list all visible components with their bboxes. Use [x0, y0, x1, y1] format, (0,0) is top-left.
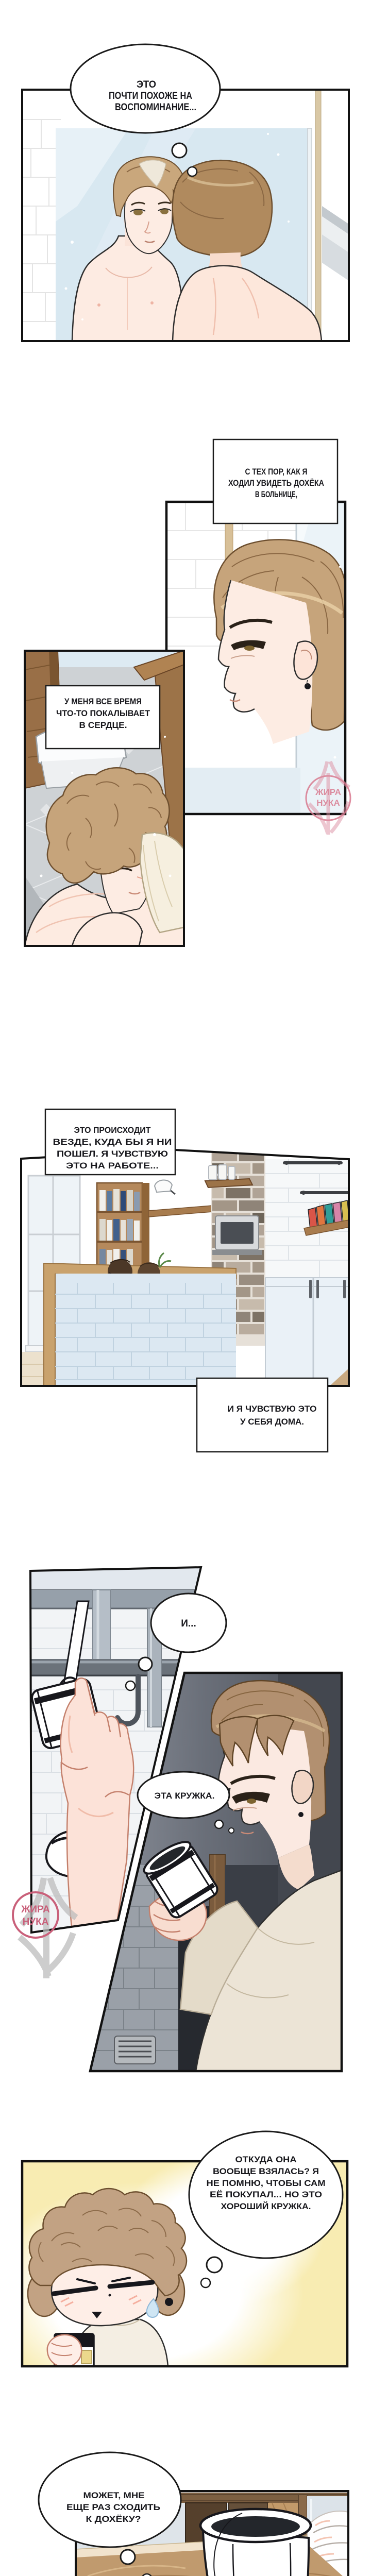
svg-text:У СЕБЯ ДОМА.: У СЕБЯ ДОМА. [240, 1417, 304, 1427]
svg-text:ЭТО НА РАБОТЕ...: ЭТО НА РАБОТЕ... [66, 1161, 159, 1171]
svg-text:ЧТО-ТО ПОКАЛЫВАЕТ: ЧТО-ТО ПОКАЛЫВАЕТ [56, 708, 150, 718]
svg-text:ВООБЩЕ ВЗЯЛАСЬ? Я: ВООБЩЕ ВЗЯЛАСЬ? Я [213, 2166, 319, 2176]
svg-text:ПОШЕЛ. Я ЧУВСТВУЮ: ПОШЕЛ. Я ЧУВСТВУЮ [57, 1149, 168, 1159]
svg-text:К ДОХЁКУ?: К ДОХЁКУ? [86, 2514, 141, 2524]
svg-text:И...: И... [181, 1618, 196, 1629]
svg-text:ЕЁ ПОКУПАЛ... НО ЭТО: ЕЁ ПОКУПАЛ... НО ЭТО [210, 2190, 322, 2199]
svg-text:С ТЕХ ПОР, КАК Я: С ТЕХ ПОР, КАК Я [245, 467, 308, 477]
svg-text:НУКА: НУКА [316, 798, 340, 808]
svg-text:НУКА: НУКА [23, 1917, 49, 1927]
svg-text:В БОЛЬНИЦЕ,: В БОЛЬНИЦЕ, [255, 489, 297, 499]
svg-text:ХОДИЛ УВИДЕТЬ ДОХЁКА: ХОДИЛ УВИДЕТЬ ДОХЁКА [228, 478, 324, 488]
svg-text:ВОСПОМИНАНИЕ...: ВОСПОМИНАНИЕ... [115, 102, 196, 113]
svg-text:И Я ЧУВСТВУЮ ЭТО: И Я ЧУВСТВУЮ ЭТО [228, 1404, 317, 1414]
svg-text:ХОРОШИЙ КРУЖКА.: ХОРОШИЙ КРУЖКА. [221, 2201, 311, 2211]
svg-text:У МЕНЯ ВСЕ ВРЕМЯ: У МЕНЯ ВСЕ ВРЕМЯ [64, 697, 142, 706]
svg-text:ЕЩЕ РАЗ СХОДИТЬ: ЕЩЕ РАЗ СХОДИТЬ [66, 2502, 160, 2512]
svg-text:ПОЧТИ ПОХОЖЕ НА: ПОЧТИ ПОХОЖЕ НА [109, 91, 192, 101]
svg-text:ЭТО: ЭТО [137, 79, 156, 90]
svg-text:ЖИРА: ЖИРА [315, 787, 341, 797]
svg-text:ЭТО ПРОИСХОДИТ: ЭТО ПРОИСХОДИТ [74, 1125, 151, 1135]
svg-text:ВЕЗДЕ, КУДА БЫ Я НИ: ВЕЗДЕ, КУДА БЫ Я НИ [53, 1137, 172, 1147]
svg-text:МОЖЕТ, МНЕ: МОЖЕТ, МНЕ [83, 2490, 145, 2500]
svg-text:ОТКУДА ОНА: ОТКУДА ОНА [235, 2155, 297, 2164]
svg-text:ЖИРА: ЖИРА [21, 1904, 50, 1915]
svg-text:ЭТА КРУЖКА.: ЭТА КРУЖКА. [155, 1791, 215, 1801]
svg-text:В СЕРДЦЕ.: В СЕРДЦЕ. [79, 720, 127, 730]
svg-text:НЕ ПОМНЮ, ЧТОБЫ САМ: НЕ ПОМНЮ, ЧТОБЫ САМ [207, 2178, 326, 2188]
